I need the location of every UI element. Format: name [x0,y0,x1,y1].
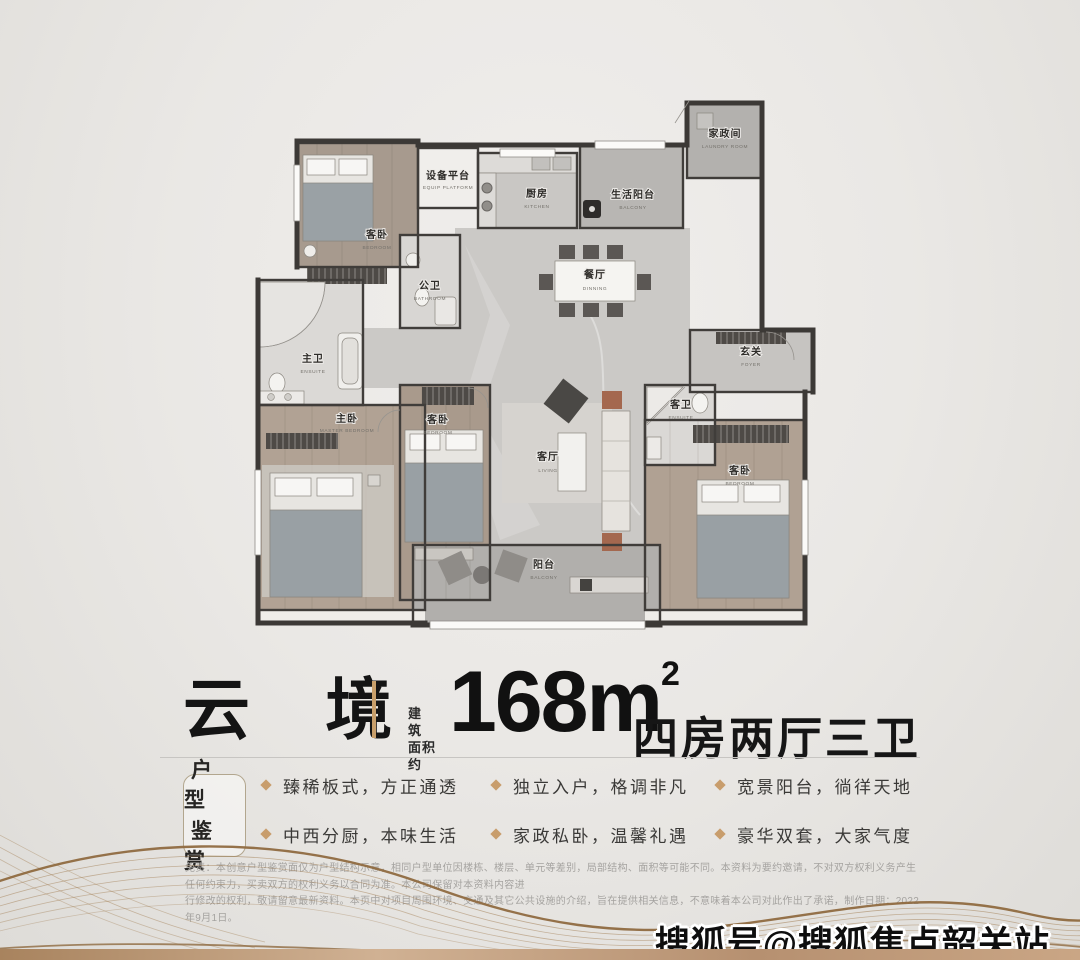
svg-text:ENSUITE: ENSUITE [669,415,694,421]
room-label-equipment-platform: 设备平台 EQUIP PLATFORM [423,169,473,191]
room-label-bedroom-top: 客卧 BEDROOM [363,228,392,251]
svg-text:BATHROOM: BATHROOM [414,296,446,302]
svg-text:LAUNDRY ROOM: LAUNDRY ROOM [702,144,748,150]
svg-text:BALCONY: BALCONY [619,205,646,211]
area-prefix-line1: 建 筑 [408,706,448,740]
bottom-bar [0,949,1080,960]
svg-text:主卧: 主卧 [336,412,358,425]
area-number: 168m [449,654,661,750]
svg-text:MASTER BEDROOM: MASTER BEDROOM [320,428,375,434]
horizontal-divider [160,757,920,758]
room-label-master-ensuite: 主卫 ENSUITE [301,352,326,375]
feature-item: 宽景阳台，徜徉天地 [716,776,922,794]
svg-text:公卫: 公卫 [419,280,441,292]
svg-text:LIVING: LIVING [538,468,557,474]
svg-text:BALCONY: BALCONY [530,575,557,581]
diamond-bullet-icon [260,779,271,790]
area-unit-superscript: 2 [661,655,680,693]
feature-text: 臻稀板式，方正通透 [283,773,459,798]
title-divider-bar [372,681,376,738]
feature-item: 臻稀板式，方正通透 [262,776,492,794]
room-label-laundry: 家政间 LAUNDRY ROOM [702,127,748,150]
svg-text:设备平台: 设备平台 [426,169,470,182]
svg-text:BEDROOM: BEDROOM [726,481,755,487]
feature-text: 宽景阳台，徜徉天地 [737,773,913,798]
diamond-bullet-icon [490,779,501,790]
svg-text:厨房: 厨房 [526,187,548,200]
svg-text:客卧: 客卧 [426,413,449,426]
area-prefix: 建 筑 面积约 [408,706,448,774]
svg-text:EQUIP PLATFORM: EQUIP PLATFORM [423,185,473,191]
svg-text:客卫: 客卫 [669,398,692,411]
plan-title: 云 境 [183,676,418,743]
svg-text:ENSUITE: ENSUITE [301,369,326,375]
poster-canvas: 家政间 LAUNDRY ROOM 设备平台 EQUIP PLATFORM 厨房 … [0,0,1080,960]
feature-text: 独立入户，格调非凡 [513,773,689,798]
svg-text:DINNING: DINNING [583,286,607,292]
svg-text:客厅: 客厅 [536,450,559,463]
svg-text:家政间: 家政间 [709,127,742,140]
svg-text:阳台: 阳台 [533,558,555,571]
svg-text:玄关: 玄关 [740,345,762,358]
svg-text:客卧: 客卧 [365,228,388,241]
room-label-foyer: 玄关 FOYER [740,345,762,368]
svg-text:生活阳台: 生活阳台 [611,188,655,201]
svg-text:餐厅: 餐厅 [583,268,606,281]
svg-text:FOYER: FOYER [741,362,761,368]
diamond-bullet-icon [714,779,725,790]
svg-text:客卧: 客卧 [728,464,751,477]
room-label-living: 客厅 LIVING [536,450,559,474]
room-label-dining: 餐厅 DINNING [583,268,607,292]
features-badge-line1: 户型 [184,755,245,816]
svg-text:主卫: 主卫 [302,352,324,365]
floorplan-diagram: 家政间 LAUNDRY ROOM 设备平台 EQUIP PLATFORM 厨房 … [250,85,840,645]
svg-text:KITCHEN: KITCHEN [524,204,549,210]
room-label-bedroom-right: 客卧 BEDROOM [726,464,755,487]
svg-text:BEDROOM: BEDROOM [424,430,453,436]
feature-item: 独立入户，格调非凡 [492,776,716,794]
room-label-kitchen: 厨房 KITCHEN [524,187,549,210]
room-label-bedroom-middle: 客卧 BEDROOM [424,413,453,436]
svg-text:BEDROOM: BEDROOM [363,245,392,251]
room-label-balcony: 阳台 BALCONY [530,558,557,581]
room-label-guest-ensuite: 客卫 ENSUITE [669,398,694,421]
